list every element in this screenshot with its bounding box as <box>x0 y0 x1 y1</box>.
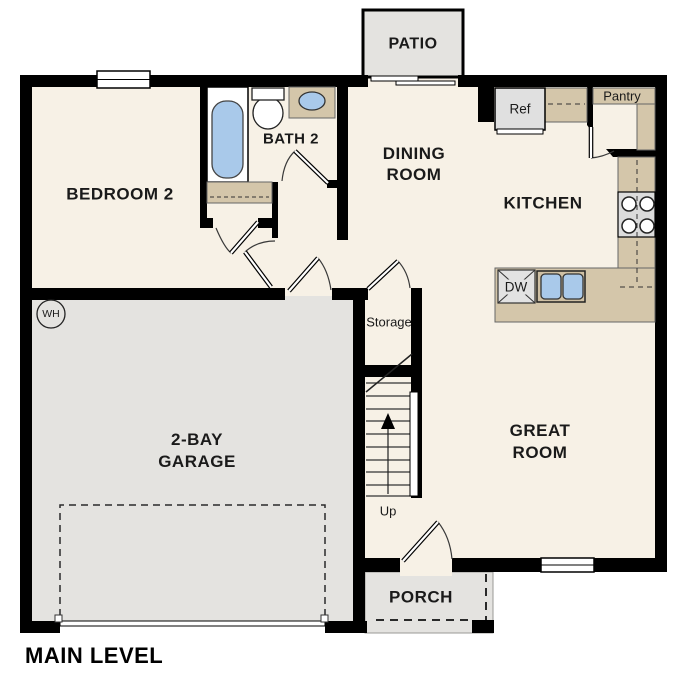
dining-room-label: DINING ROOM <box>383 143 446 185</box>
kitchen-sink <box>537 271 585 302</box>
plan-title: MAIN LEVEL <box>25 643 163 669</box>
stair-handrail <box>410 392 418 496</box>
bath2-label: BATH 2 <box>263 129 319 150</box>
up-label: Up <box>380 504 397 519</box>
bedroom2-label: BEDROOM 2 <box>66 184 173 205</box>
front-door-sill <box>400 558 452 576</box>
porch-label: PORCH <box>389 587 453 608</box>
patio-label: PATIO <box>388 34 437 55</box>
toilet-bowl <box>253 97 283 129</box>
bedroom-closet <box>207 182 272 203</box>
burner <box>622 219 636 233</box>
floor-plan-drawing <box>0 0 687 687</box>
burner <box>640 197 654 211</box>
toilet-tank <box>252 88 284 100</box>
burner <box>622 197 636 211</box>
great-room-label: GREAT ROOM <box>510 420 571 464</box>
ref-label: Ref <box>509 102 530 117</box>
burner <box>640 219 654 233</box>
storage-label: Storage <box>366 315 412 330</box>
kitchen-label: KITCHEN <box>503 193 582 214</box>
upper-counter <box>545 88 587 122</box>
wh-label: WH <box>42 308 60 320</box>
bath-sink <box>299 92 325 110</box>
dw-label: DW <box>504 280 529 295</box>
pantry-shelf-right <box>637 104 655 150</box>
pantry-label: Pantry <box>603 89 641 104</box>
garage-label: 2-BAY GARAGE <box>158 429 236 473</box>
bathtub <box>212 101 243 178</box>
floor-plan: PATIO DINING ROOM KITCHEN Pantry Ref BAT… <box>0 0 687 687</box>
